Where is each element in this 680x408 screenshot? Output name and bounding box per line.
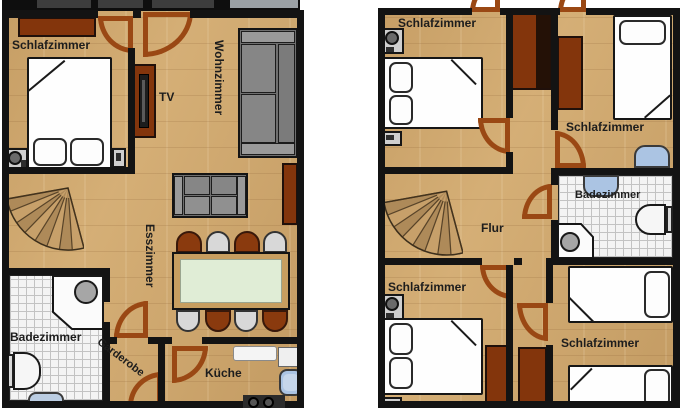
kitchen-counter [233, 346, 277, 361]
room-label: Schlafzimmer [561, 336, 639, 350]
sideboard [282, 163, 298, 225]
dresser [18, 17, 96, 37]
floor-plan-left: Schlafzimmer TV Wohnzimmer Esszimmer [2, 0, 304, 408]
wall [514, 258, 522, 265]
wall [551, 175, 558, 185]
terrace-furniture [150, 0, 216, 10]
pillow [644, 271, 670, 318]
wall [202, 337, 304, 344]
wall [546, 258, 680, 265]
sofa-cushion [211, 196, 237, 215]
wall [2, 10, 9, 408]
wall [2, 10, 98, 18]
wall [546, 345, 553, 408]
chair [206, 231, 230, 253]
wall [506, 8, 513, 118]
terrace-mat [228, 0, 300, 10]
nightstand-knob [386, 47, 394, 52]
pillow [389, 95, 413, 125]
toilet-tank [666, 206, 673, 233]
wall [586, 8, 680, 15]
wall [378, 167, 513, 174]
wardrobe-dark-panel [536, 13, 550, 88]
wall [673, 8, 680, 408]
sofa-armrest [237, 176, 246, 215]
shower [52, 275, 105, 331]
sofa-cushion [211, 176, 237, 195]
door-swing [558, 0, 586, 12]
nightstand-knob [116, 153, 121, 161]
tv-screen-glare [142, 80, 145, 122]
wall [190, 10, 304, 18]
lamp [385, 31, 399, 45]
pillow [33, 138, 67, 166]
wall [297, 10, 304, 408]
sofa-cushion [184, 176, 210, 195]
pillow [70, 138, 104, 166]
sofa-armrest [241, 143, 295, 155]
terrace-furniture [35, 0, 93, 10]
wall [551, 168, 680, 175]
wall [133, 10, 141, 18]
bedroom-sink [634, 145, 670, 168]
wall [2, 268, 110, 275]
room-label: Küche [205, 366, 242, 380]
room-label: TV [159, 90, 174, 104]
wall [148, 337, 172, 344]
stove-burner [248, 397, 259, 408]
wall [103, 268, 110, 302]
wall [378, 8, 385, 408]
wall [506, 265, 513, 408]
sofa-back [278, 44, 295, 143]
wall [378, 8, 472, 15]
spiral-stairs [385, 178, 463, 260]
room-label: Badezimmer [10, 330, 81, 344]
stove-burner [263, 397, 274, 408]
wardrobe [518, 347, 547, 408]
sofa-armrest [241, 31, 295, 43]
chair [176, 231, 202, 253]
nightstand-knob [386, 135, 394, 140]
wall [158, 344, 165, 408]
pillow [389, 357, 413, 389]
shower [557, 223, 595, 260]
chair [263, 231, 287, 253]
floor-plan-page: { "left_plan": { "labels": { "schlafzimm… [0, 0, 680, 408]
wall [128, 48, 135, 174]
sofa-cushion [241, 44, 276, 93]
wall [378, 258, 482, 265]
room-label: Schlafzimmer [398, 16, 476, 30]
room-label: Schlafzimmer [566, 120, 644, 134]
lamp [385, 297, 399, 311]
wall [2, 167, 135, 174]
room-label: Schlafzimmer [12, 38, 90, 52]
chair [234, 231, 260, 253]
room-label: Schlafzimmer [388, 280, 466, 294]
floor-plan-right: Schlafzimmer Schlafzimmer Badezimmer Flu… [378, 0, 680, 408]
sofa-armrest [174, 176, 183, 215]
wardrobe [557, 36, 583, 110]
sofa-cushion [184, 196, 210, 215]
dining-table-top [180, 259, 282, 303]
pillow [389, 323, 413, 355]
room-label: Esszimmer [143, 224, 157, 287]
spiral-stairs [8, 176, 84, 254]
toilet [635, 204, 666, 235]
fridge [278, 347, 299, 367]
wall [551, 8, 558, 130]
room-label: Badezimmer [575, 189, 640, 201]
pillow [619, 20, 666, 45]
pillow [389, 62, 413, 93]
wall [546, 265, 553, 303]
room-label: Wohnzimmer [212, 40, 226, 115]
terrace-furniture [96, 0, 145, 10]
room-label: Flur [481, 221, 504, 235]
wall [378, 401, 680, 408]
sofa-cushion [241, 94, 276, 143]
wall [103, 322, 110, 408]
door-swing [470, 0, 500, 12]
lamp [8, 151, 22, 165]
